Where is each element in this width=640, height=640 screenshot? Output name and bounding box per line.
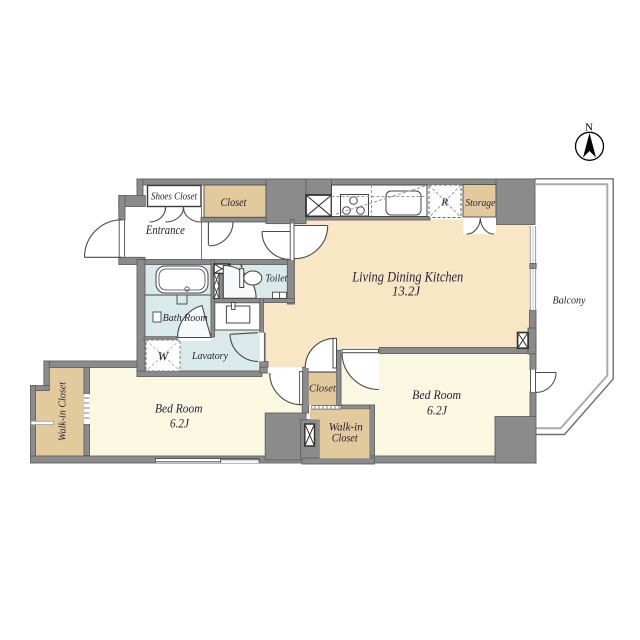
svg-text:Closet: Closet	[332, 432, 359, 444]
svg-text:Shoes Closet: Shoes Closet	[151, 192, 198, 203]
svg-text:Entrance: Entrance	[145, 223, 185, 237]
svg-text:Toilet: Toilet	[265, 272, 288, 284]
svg-text:Bed Room: Bed Room	[412, 387, 461, 402]
svg-text:W: W	[158, 350, 170, 364]
svg-text:Lavatory: Lavatory	[191, 350, 228, 362]
svg-text:Storage: Storage	[465, 197, 495, 209]
svg-text:6.2J: 6.2J	[427, 402, 448, 417]
svg-text:N: N	[585, 122, 593, 134]
svg-text:Closet: Closet	[221, 195, 248, 209]
svg-text:R: R	[440, 196, 448, 208]
svg-text:13.2J: 13.2J	[392, 285, 421, 300]
svg-text:Bath Room: Bath Room	[163, 312, 208, 324]
svg-text:Living Dining Kitchen: Living Dining Kitchen	[351, 270, 463, 286]
svg-text:6.2J: 6.2J	[170, 416, 190, 431]
svg-text:Walk-in Closet: Walk-in Closet	[58, 381, 69, 441]
svg-text:Closet: Closet	[309, 383, 337, 394]
svg-text:Bed Room: Bed Room	[155, 401, 203, 416]
svg-text:Balcony: Balcony	[553, 296, 586, 307]
